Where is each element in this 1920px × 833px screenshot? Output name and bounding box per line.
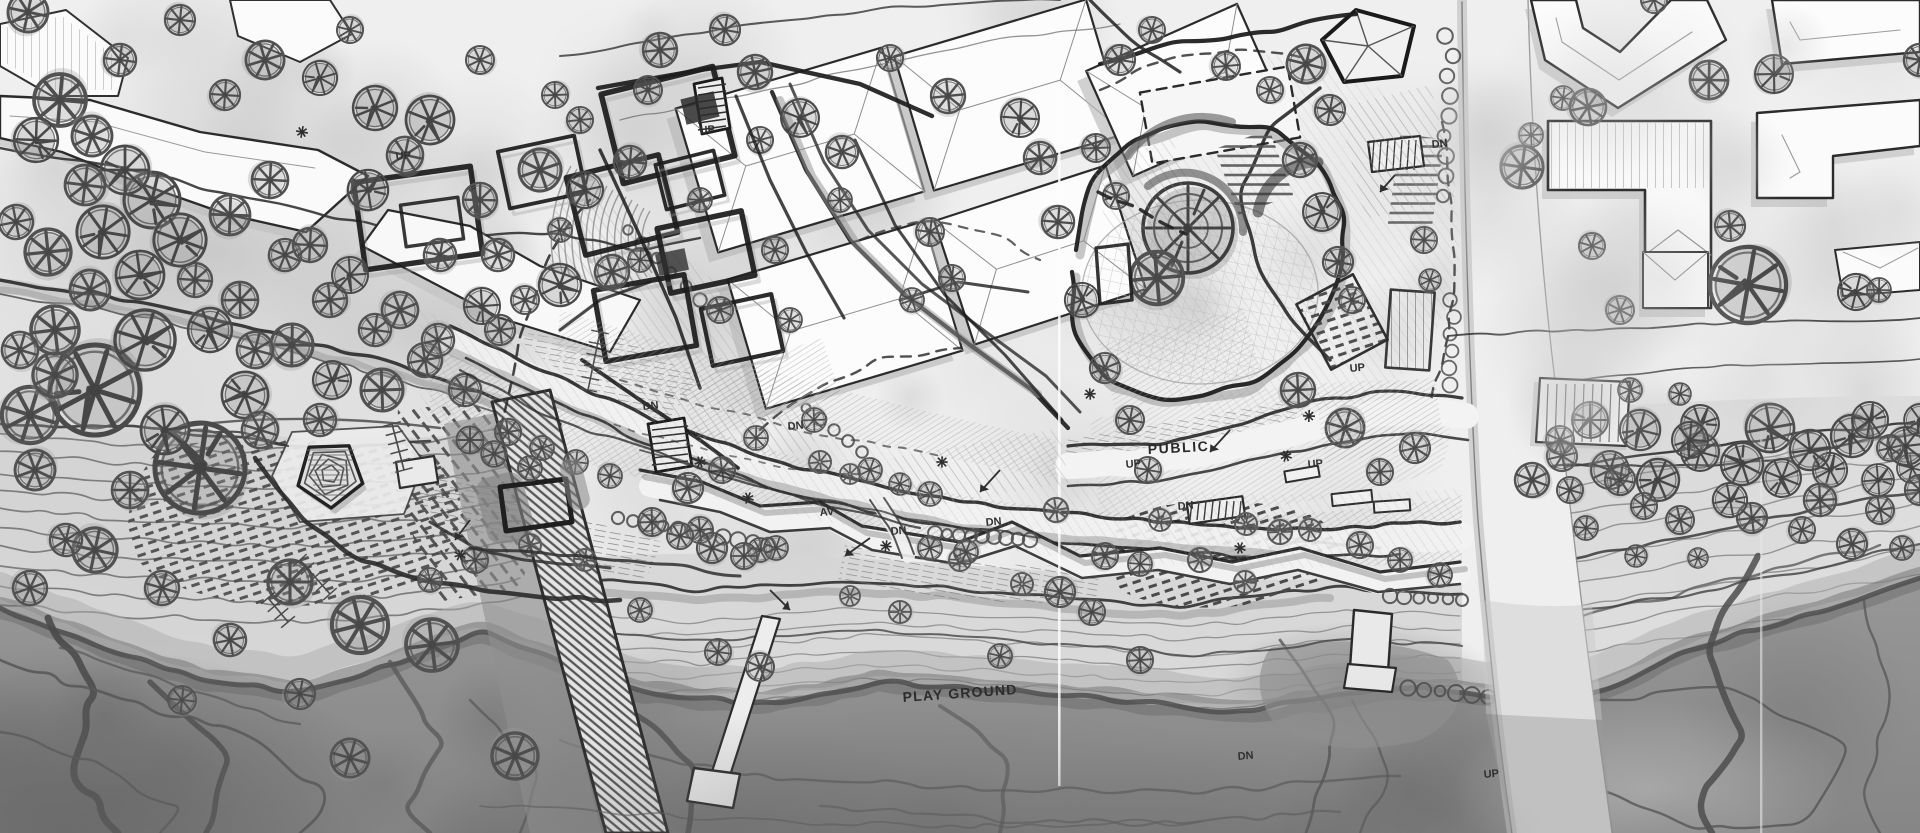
svg-text:UP: UP	[1349, 362, 1365, 375]
svg-text:UP: UP	[699, 124, 715, 137]
svg-text:DN: DN	[890, 525, 907, 538]
svg-text:UP: UP	[1307, 458, 1323, 471]
svg-text:DN: DN	[1431, 138, 1448, 151]
svg-text:AV: AV	[819, 506, 835, 519]
svg-text:DN: DN	[787, 420, 804, 433]
svg-text:UP: UP	[1125, 458, 1141, 471]
svg-text:DN: DN	[642, 400, 659, 413]
svg-text:DN: DN	[985, 516, 1002, 529]
svg-text:DN: DN	[1177, 500, 1194, 513]
svg-text:DN: DN	[1237, 750, 1254, 763]
svg-text:UP: UP	[395, 150, 411, 163]
svg-text:PUBLIC: PUBLIC	[1147, 438, 1209, 457]
svg-text:UP: UP	[1483, 768, 1499, 781]
